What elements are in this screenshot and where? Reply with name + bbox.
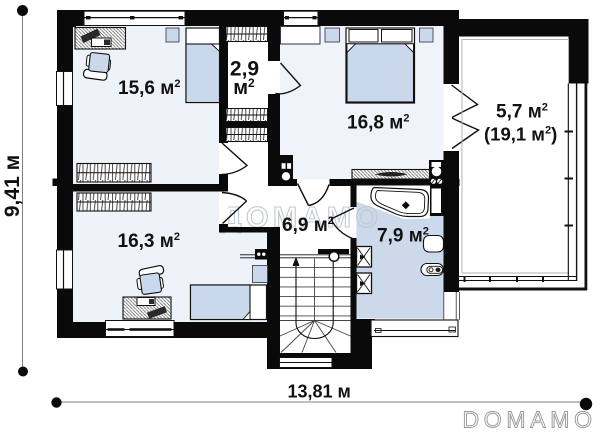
- svg-text:9,41 м: 9,41 м: [1, 155, 24, 217]
- svg-text:7,9 м2: 7,9 м2: [377, 226, 429, 247]
- svg-text:DOMAMO: DOMAMO: [463, 407, 597, 433]
- svg-text:16,3 м2: 16,3 м2: [118, 231, 180, 252]
- svg-text:15,6 м2: 15,6 м2: [118, 78, 180, 99]
- svg-text:13,81 м: 13,81 м: [288, 382, 351, 402]
- svg-text:16,8 м2: 16,8 м2: [347, 113, 409, 134]
- svg-text:5,7 м2: 5,7 м2: [496, 102, 548, 123]
- svg-text:6,9 м2: 6,9 м2: [282, 215, 334, 236]
